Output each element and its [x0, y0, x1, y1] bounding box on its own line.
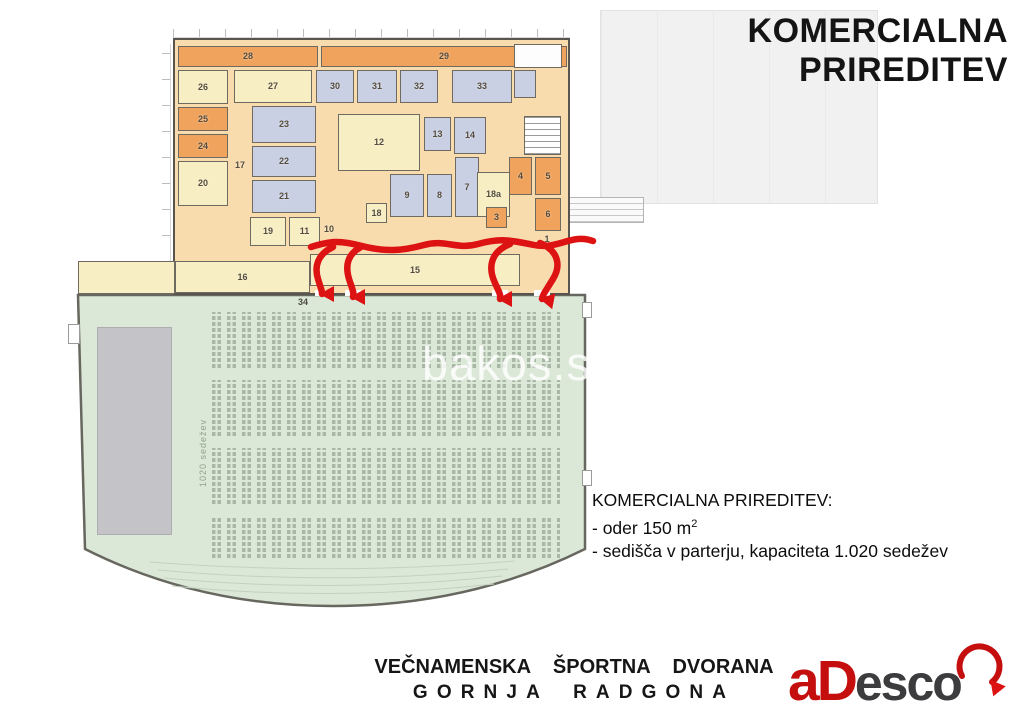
exit-door: [582, 302, 592, 318]
watermark: bakos.s: [422, 336, 591, 391]
footer-title: VEČNAMENSKA ŠPORTNA DVORANA GORNJA RADGO…: [356, 656, 792, 704]
stage: [97, 327, 172, 535]
annotation-heading: KOMERCIALNA PRIREDITEV:: [592, 489, 948, 513]
annotation-seats-line: - sedišča v parterju, kapaciteta 1.020 s…: [592, 540, 948, 564]
footer-line1: VEČNAMENSKA ŠPORTNA DVORANA: [356, 656, 792, 679]
page-title-line1: KOMERCIALNA: [748, 12, 1008, 51]
hall-number-label: 34: [298, 297, 308, 307]
annotation-stage-line: - oder 150 m2: [592, 513, 948, 540]
door-gap: [345, 290, 361, 296]
exit-door: [68, 324, 80, 344]
logo-swoosh-arrow-icon: [948, 632, 1012, 702]
footer-line2: GORNJA RADGONA: [356, 682, 792, 704]
building-wing: [173, 38, 570, 295]
hall-capacity-label: 1020 sedežev: [198, 419, 208, 487]
seating-block: [212, 516, 560, 558]
logo-text-red: aD: [788, 649, 855, 713]
adesco-logo: aDesco: [788, 648, 998, 712]
superscript-2: 2: [691, 518, 697, 530]
logo-text-dark: esco: [855, 655, 961, 711]
seating-block: [212, 448, 560, 504]
annotation-block: KOMERCIALNA PRIREDITEV: - oder 150 m2 - …: [592, 489, 948, 563]
door-gap: [492, 290, 508, 296]
exit-door: [582, 470, 592, 486]
page-title: KOMERCIALNA PRIREDITEV: [748, 12, 1008, 90]
page-title-line2: PRIREDITEV: [748, 51, 1008, 90]
door-gap: [534, 290, 550, 296]
door-gap: [315, 290, 331, 296]
